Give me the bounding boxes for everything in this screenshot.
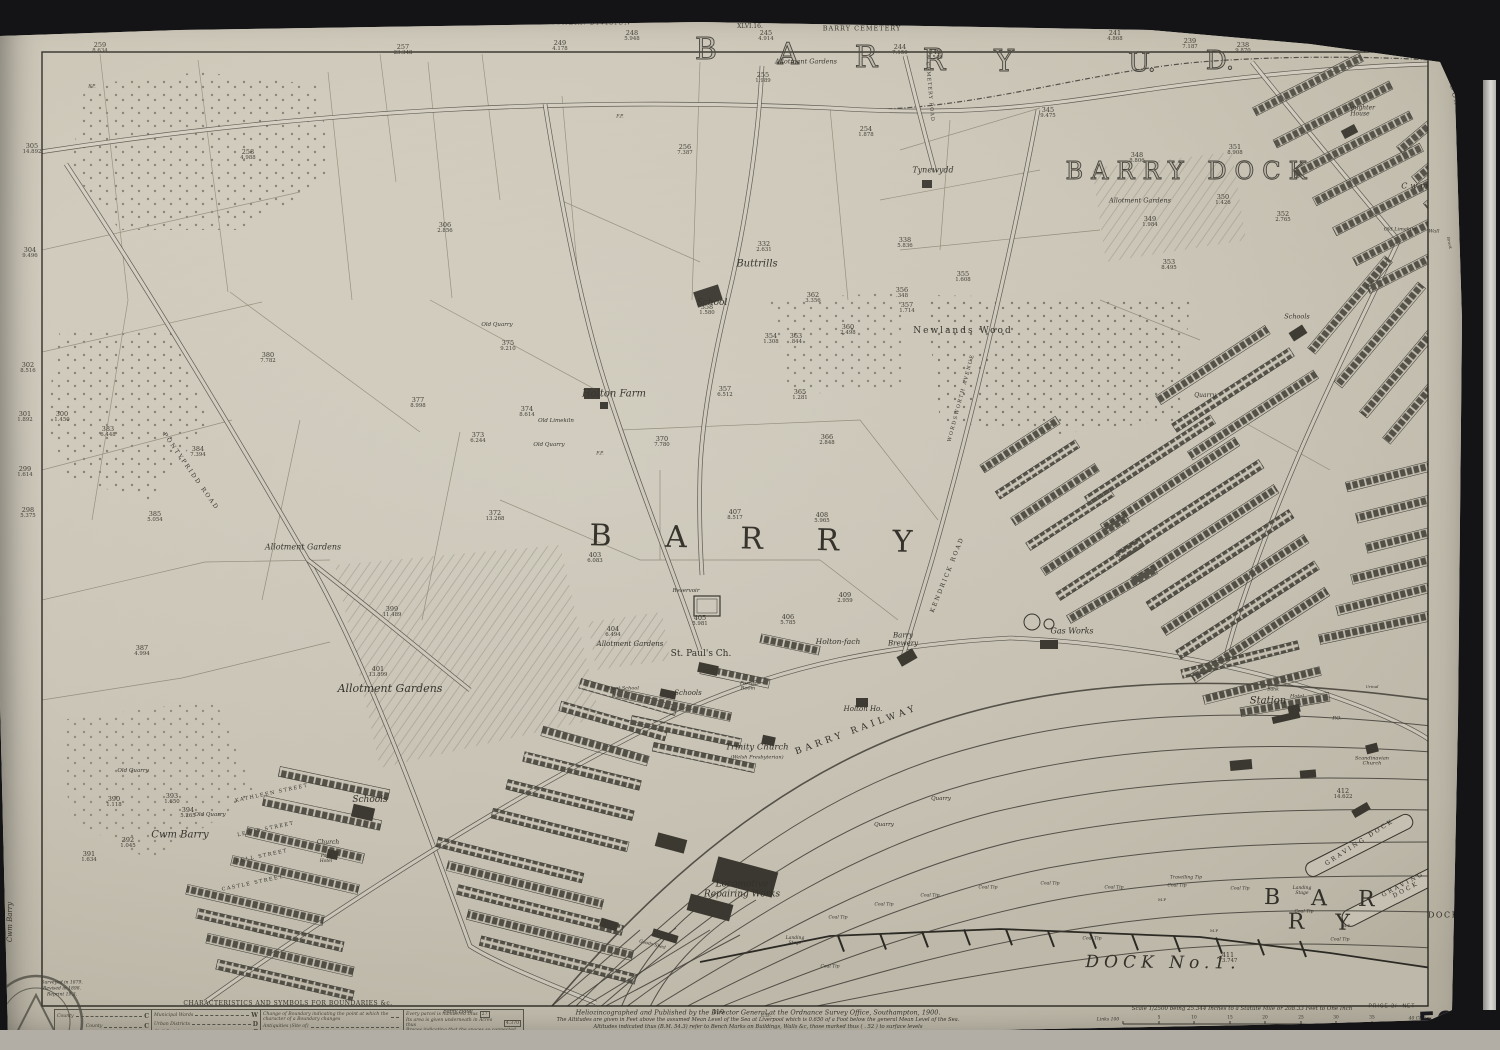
terrace-housing-block — [1423, 159, 1482, 211]
map-label: Schools — [352, 796, 387, 806]
parcel-area: 4.994 — [134, 652, 149, 657]
map-label: Old Quarry — [194, 813, 225, 819]
map-label: Gas Works — [1050, 628, 1093, 637]
map-label: Urinal — [1366, 685, 1379, 689]
parcel-number: 2551.989 — [755, 72, 770, 84]
parcel-area: 1.878 — [858, 133, 873, 138]
map-label: Bank — [1267, 689, 1279, 694]
parcel-area: 73.747 — [1219, 959, 1238, 964]
parcel-area: 9.475 — [1040, 114, 1055, 119]
field-boundary — [182, 642, 330, 678]
map-label: Park Hotel — [320, 855, 333, 865]
price-label: PRICE 2/- NET — [1369, 1004, 1416, 1009]
parcel-area: 1.450 — [54, 418, 69, 423]
boundary-symbol — [192, 1023, 251, 1025]
parcel-area: 1.989 — [755, 79, 770, 84]
parcel-number: 363.844 — [790, 333, 802, 345]
field-boundary — [428, 62, 452, 298]
parcel-area: 8.908 — [1227, 151, 1242, 156]
parcel-area: 2.765 — [1275, 218, 1290, 223]
map-label: A — [777, 39, 799, 71]
legend-title: CHARACTERISTICS AND SYMBOLS FOR BOUNDARI… — [183, 1001, 392, 1007]
map-label: M.P — [1342, 924, 1350, 928]
parcel-area: 6.494 — [605, 633, 620, 638]
road-casing — [700, 66, 762, 575]
parcel-area: 5.375 — [20, 514, 35, 519]
parcel-area: 3.356 — [805, 299, 820, 304]
field-boundary — [860, 420, 938, 520]
map-label: M.P — [1210, 929, 1218, 933]
adjoining-cwm-barry: Cwm Barry — [7, 902, 15, 942]
parcel-number: 4055.981 — [692, 615, 707, 627]
map-label: B — [695, 34, 717, 66]
map-label: Cwm Barry — [151, 831, 208, 842]
terrace-housing-block — [1026, 488, 1115, 550]
parcel-number: 2414.868 — [1107, 30, 1122, 42]
parcel-area: 4.914 — [758, 37, 773, 42]
parcel-number: 3847.394 — [190, 446, 205, 458]
map-label: Coal Tip — [874, 904, 893, 909]
boundary-symbol — [76, 1015, 143, 1017]
parcel-area: 5.054 — [147, 518, 162, 523]
terrace-housing-block — [1334, 282, 1425, 388]
map-label: Coal Tip — [1082, 938, 1101, 943]
parcel-number: 3836.448 — [100, 426, 115, 438]
terrace-housing-block — [1056, 538, 1145, 600]
scale-tick-label: 30 — [1333, 1017, 1338, 1022]
parcel-area: 2.856 — [437, 229, 452, 234]
parcel-area: 1.614 — [17, 473, 32, 478]
parcel-number: 3576.512 — [717, 386, 732, 398]
parcel-area: 4.868 — [1107, 37, 1122, 42]
map-label: Old Limekiln — [538, 419, 574, 425]
scale-tick-label: 35 — [1369, 1017, 1374, 1022]
sheet-ref-small: XLVI.16. — [737, 24, 763, 30]
parcel-area: .844 — [790, 340, 802, 345]
parcel-number: 3921.045 — [120, 837, 135, 849]
parcel-number: 2485.948 — [624, 30, 639, 42]
parcel-area: 14.622 — [1334, 795, 1353, 800]
edition-title: SECOND EDITION 1900 — [636, 7, 838, 21]
parcel-number: 3491.984 — [1142, 216, 1157, 228]
parcel-number: 3538.495 — [1161, 259, 1176, 271]
map-label: Slaughter House — [1345, 106, 1375, 119]
terrace-housing-block — [1172, 348, 1295, 433]
parcel-number: 2447.150 — [892, 44, 907, 56]
parcel-number: 3028.516 — [20, 362, 35, 374]
parcel-number: 3651.281 — [792, 389, 807, 401]
parcel-number: 2584.988 — [240, 149, 255, 161]
terrace-housing-block — [1355, 487, 1464, 523]
building — [600, 402, 608, 409]
parcel-area: 7.187 — [1182, 45, 1197, 50]
parcel-number: 2985.375 — [20, 507, 35, 519]
parcel-number: 2389.870 — [1235, 42, 1250, 54]
map-label: Landing Stage — [1293, 887, 1312, 897]
parcel-area: 2.498 — [840, 331, 855, 336]
terrace-housing-block — [506, 779, 635, 820]
field-boundary — [42, 678, 182, 700]
parcel-number: 4046.494 — [605, 626, 620, 638]
parcel-number: 3931.650 — [164, 793, 179, 805]
parcel-area: 5.785 — [780, 621, 795, 626]
legend-item-label: Municipal Wards — [154, 1013, 193, 1018]
road-surface — [700, 66, 762, 575]
parcel-number: 356.348 — [896, 287, 908, 299]
map-label: Coal Tip — [978, 887, 997, 892]
field-boundary — [42, 562, 205, 600]
parcel-area: 7.782 — [260, 359, 275, 364]
parcel-number: 4065.785 — [780, 614, 795, 626]
map-photo: { "photo":{"background":"#141416","paper… — [0, 0, 1500, 1050]
parcel-number: 3062.856 — [437, 222, 452, 234]
parcel-area: 8.806 — [1129, 159, 1144, 164]
scale-tick-label: 20 — [1262, 1017, 1267, 1022]
imprint-line1: Heliozincographed and Published by the D… — [576, 1009, 941, 1016]
map-label: Tynewydd — [912, 167, 953, 176]
parcel-number: 4092.959 — [837, 592, 852, 604]
table-surface — [0, 1030, 1500, 1050]
map-label: Coal Tip — [1230, 888, 1249, 893]
legend-sample-value: 4.370 — [504, 1020, 521, 1027]
map-label: R — [855, 42, 878, 74]
map-label: Locomotive Repairing Works — [704, 880, 780, 899]
map-label: U. — [1128, 49, 1156, 77]
map-label: Hotel — [1290, 694, 1304, 699]
map-label: Coal Tip — [1104, 887, 1123, 892]
building — [1300, 769, 1317, 778]
parcel-number: 3571.714 — [899, 302, 914, 314]
map-label: Old Quarry — [481, 323, 512, 329]
field-boundary — [900, 230, 1100, 250]
parcel-area: 1.426 — [1215, 201, 1230, 206]
parcel-area: 8.495 — [1161, 266, 1176, 271]
map-label: Parish Room — [740, 682, 756, 693]
boundary-symbol — [391, 1016, 399, 1018]
road-casing — [545, 104, 700, 650]
parcel-number: 2598.634 — [92, 42, 107, 54]
map-label: Reservoir — [673, 589, 700, 595]
building — [1341, 124, 1358, 139]
parcel-number: 3623.356 — [805, 292, 820, 304]
parcel-area: 1.118 — [106, 803, 121, 808]
cemetery-margin-label: BARRY CEMETERY — [823, 25, 902, 32]
parcel-area: 1.308 — [763, 340, 778, 345]
parcel-area: 1.045 — [120, 844, 135, 849]
map-label: D. — [1206, 47, 1234, 75]
map-label: M.P — [1158, 898, 1166, 902]
scale-tick-label: 10 — [1191, 1017, 1196, 1022]
map-label: Holton Ho. — [844, 706, 883, 714]
parcel-area: 8.549 — [927, 56, 942, 61]
map-label: Coal Tip — [1167, 885, 1186, 890]
parcel-number: 2991.614 — [17, 466, 32, 478]
parcel-number: 2567.387 — [677, 144, 692, 156]
parcel-number: 3901.118 — [106, 796, 121, 808]
field-boundary — [380, 54, 396, 182]
town-title-barry: B A R R Y — [589, 520, 934, 560]
map-label: Holton Farm — [582, 390, 646, 401]
legend-item-label: Change of Boundary indicating the point … — [263, 1012, 389, 1022]
parcel-number: 3707.780 — [654, 436, 669, 448]
field-boundary — [328, 72, 352, 300]
parcel-number: 2438.549 — [927, 49, 942, 61]
survey-note-line: Reprint 19.3. — [47, 994, 77, 999]
sheet-label: GLAMORGAN SHEET L.4. — [1319, 9, 1425, 31]
parcel-number: 3518.908 — [1227, 144, 1242, 156]
district-title-barry-dock: BARRY DOCK — [1065, 159, 1314, 185]
map-label: Church — [317, 840, 339, 846]
map-label: F.P. — [88, 86, 95, 91]
map-label: Y — [994, 46, 1014, 78]
parcel-area: 7.387 — [677, 151, 692, 156]
parcel-number: 3501.426 — [1215, 194, 1230, 206]
parcel-area: 9.496 — [22, 254, 37, 259]
terrace-housing-block — [1041, 513, 1130, 575]
terrace-housing-block — [1187, 370, 1318, 460]
scale-tick-label: 15 — [1227, 1017, 1232, 1022]
legend-sample-value: 27 — [480, 1011, 490, 1018]
legend-item-letter: D — [253, 1021, 258, 1028]
map-label: P.O. — [1332, 716, 1341, 721]
map-label: Quarry — [931, 797, 951, 803]
parcel-number: 3778.998 — [410, 397, 425, 409]
field-boundary — [230, 292, 420, 432]
map-sheet: BARRYU.D.BARRY DOCKB A R R YB A R R YDOC… — [0, 0, 1478, 1048]
map-label: Trinity Church — [725, 743, 788, 752]
woodland-area — [70, 72, 330, 230]
parcel-area: 6.083 — [587, 559, 602, 564]
parcel-number: 3581.580 — [699, 304, 714, 316]
parcel-number: 30514.892 — [23, 143, 42, 155]
parcel-number: 3011.892 — [17, 411, 32, 423]
parcel-area: 13.899 — [369, 673, 388, 678]
map-label: Quarry — [874, 823, 894, 829]
map-label: (Welsh Presbyterian) — [730, 755, 783, 760]
boundary-symbol — [311, 1026, 399, 1028]
parcel-number: 3911.634 — [81, 851, 96, 863]
parcel-area: 5.265 — [180, 814, 195, 819]
gasometer — [1024, 614, 1040, 630]
building — [1272, 711, 1301, 724]
division-label: SOUTHERN DIVISION — [539, 19, 632, 26]
parcel-area: 8.634 — [92, 49, 107, 54]
road-surface — [1226, 242, 1398, 656]
field-boundary — [482, 54, 500, 200]
building — [922, 180, 932, 188]
terrace-housing-block — [1359, 312, 1450, 418]
parcel-number: 4036.083 — [587, 552, 602, 564]
parcel-area: 7.394 — [190, 453, 205, 458]
reservoir-inner — [697, 599, 717, 613]
parcel-area: 1.281 — [792, 396, 807, 401]
map-label: Coal Tip — [920, 895, 939, 900]
parcel-area: 7.780 — [654, 443, 669, 448]
map-label: Allotment Gardens — [1109, 197, 1171, 204]
map-label: Barry Brewery — [888, 632, 918, 647]
parcel-area: 1.984 — [1142, 223, 1157, 228]
parcel-area: 8.517 — [727, 516, 742, 521]
parcel-number: 3736.244 — [470, 432, 485, 444]
parcel-area: 2.631 — [756, 248, 771, 253]
map-label: Coal Tip — [828, 917, 847, 922]
parcel-number: 3459.475 — [1040, 107, 1055, 119]
legend-item-letter: C — [144, 1013, 149, 1020]
field-boundary — [1240, 420, 1330, 470]
parcel-number: 3945.265 — [180, 807, 195, 819]
boundary-symbol — [195, 1014, 249, 1016]
road-casing — [1226, 242, 1398, 656]
map-label: Buttrills — [736, 260, 777, 271]
map-label: Wall — [1429, 229, 1440, 234]
building — [1230, 759, 1253, 771]
parcel-number: 41214.622 — [1334, 788, 1353, 800]
field-boundary — [940, 120, 950, 250]
building — [1351, 802, 1371, 818]
parcel-number: 4078.517 — [727, 509, 742, 521]
parcel-number: 3759.210 — [500, 340, 515, 352]
parcel-area: 9.210 — [500, 347, 515, 352]
parcel-area: 2.959 — [837, 599, 852, 604]
map-label: Station — [1250, 697, 1287, 708]
boundary-symbol — [104, 1026, 142, 1028]
parcel-number: 2454.914 — [758, 30, 773, 42]
parcel-number: 3385.836 — [897, 237, 912, 249]
building — [1289, 324, 1308, 341]
parcel-number: 2494.178 — [552, 40, 567, 52]
newlands-wood-area — [925, 295, 1190, 435]
parcel-number: 3541.308 — [763, 333, 778, 345]
map-label: Allotment Gardens — [597, 641, 664, 649]
legend-item-letter: W — [251, 1012, 258, 1019]
parcel-area: 2.848 — [819, 441, 834, 446]
map-label: Scandinavian Church — [1355, 757, 1389, 768]
parcel-number: 3748.614 — [519, 406, 534, 418]
parcel-number: 3049.496 — [22, 247, 37, 259]
parcel-number: 3522.765 — [1275, 211, 1290, 223]
parcel-number: 3662.848 — [819, 434, 834, 446]
terrace-housing-block — [1365, 517, 1474, 553]
parcel-number: 3551.608 — [955, 271, 970, 283]
building — [655, 832, 688, 853]
building — [651, 928, 678, 943]
field-boundary — [620, 420, 860, 430]
legend-item-label: Urban Districts — [154, 1022, 190, 1027]
map-label: Cwm — [1401, 183, 1431, 192]
parcel-number: 3807.782 — [260, 352, 275, 364]
scale-tick-label: 25 — [1298, 1017, 1303, 1022]
union-label: CARDIFF UNION — [902, 17, 973, 24]
parcel-number: 2541.878 — [858, 126, 873, 138]
terrace-housing-block — [479, 936, 637, 984]
scale-links-label: Links 100 — [1097, 1019, 1119, 1024]
field-boundary — [880, 170, 1040, 200]
map-label: Old Quarry — [117, 769, 148, 775]
parcel-number: 2397.187 — [1182, 38, 1197, 50]
field-boundary — [830, 108, 848, 300]
parcel-area: 1.608 — [955, 278, 970, 283]
map-label: F.P. — [596, 453, 603, 458]
legend-parcel-note: Its area is given underneath in Acres th… — [406, 1018, 502, 1028]
parcel-area: 6.512 — [717, 393, 732, 398]
parcel-area: 1.714 — [899, 309, 914, 314]
parcel-number: 39911.489 — [383, 606, 402, 618]
field-boundary — [820, 560, 898, 620]
map-label: DOCKS — [1428, 912, 1466, 921]
terrace-housing-block — [1383, 346, 1468, 444]
map-label: Coal Tip — [1040, 883, 1059, 888]
building — [1365, 743, 1379, 755]
terrace-housing-block — [1066, 566, 1157, 624]
parcel-number: 25723.348 — [394, 44, 413, 56]
parcel-area: 1.634 — [81, 858, 96, 863]
parcel-area: 11.489 — [383, 613, 402, 618]
parcel-area: 8.614 — [519, 413, 534, 418]
parcel-area: 13.268 — [486, 517, 505, 522]
parcel-number: 40113.899 — [369, 666, 388, 678]
parcel-area: 6.244 — [470, 439, 485, 444]
parcel-number: 37213.268 — [486, 510, 505, 522]
imprint-line2: The Altitudes are given in Feet above th… — [557, 1018, 960, 1024]
parcel-area: 5.836 — [897, 244, 912, 249]
adjacent-sheet-edge — [1483, 80, 1496, 1010]
parcel-area: 4.178 — [552, 47, 567, 52]
legend-item-label: County — [86, 1024, 103, 1029]
map-label: Allotment Gardens — [338, 683, 443, 695]
map-label: Schools — [1284, 313, 1310, 320]
map-label: Old Quarry — [533, 443, 564, 449]
dock-no1-label: DOCK No.1. — [1085, 953, 1240, 973]
parcel-area: 9.870 — [1235, 49, 1250, 54]
parcel-number: 3322.631 — [756, 241, 771, 253]
map-label: Coal Tip — [1330, 939, 1349, 944]
parcel-area: 1.892 — [17, 418, 32, 423]
road-surface — [545, 104, 700, 650]
map-label: Landing Stage — [786, 937, 805, 947]
scale-tick-label: 5 — [1158, 1017, 1161, 1022]
parcel-area: 14.892 — [23, 150, 42, 155]
legend-item-label: County — [57, 1014, 74, 1019]
parcel-area: 5.981 — [692, 622, 707, 627]
map-label: Newlands Wood — [913, 327, 1012, 337]
map-label: Allotment Gardens — [775, 58, 837, 65]
parcel-number: 3874.994 — [134, 645, 149, 657]
map-label: Quarry — [1194, 393, 1216, 399]
scale-text: Scale 1/2500 being 25.344 Inches to a St… — [1132, 1007, 1353, 1013]
parcel-number: 3001.450 — [54, 411, 69, 423]
map-label: Coal Tip — [820, 966, 839, 971]
parcel-area: 4.988 — [240, 156, 255, 161]
terrace-housing-block — [760, 634, 821, 655]
parcel-number: 3488.806 — [1129, 152, 1144, 164]
map-label: St. Paul's Ch. — [671, 650, 732, 660]
parcel-area: 7.150 — [892, 51, 907, 56]
map-label: Infant School — [605, 686, 639, 691]
legend-item-label: Antiquities (Site of) — [263, 1024, 309, 1029]
map-label: Schools — [674, 690, 701, 698]
parcel-area: 1.650 — [164, 800, 179, 805]
parcel-number: 4085.965 — [814, 512, 829, 524]
parcel-area: 8.998 — [410, 404, 425, 409]
building — [1040, 640, 1058, 649]
parcel-area: 5.965 — [814, 519, 829, 524]
field-boundary — [560, 200, 700, 262]
parcel-number: 3602.498 — [840, 324, 855, 336]
parcel-number: 41173.747 — [1219, 952, 1238, 964]
parcel-area: 23.348 — [394, 51, 413, 56]
parcel-area: 1.580 — [699, 311, 714, 316]
parcel-area: 5.948 — [624, 37, 639, 42]
